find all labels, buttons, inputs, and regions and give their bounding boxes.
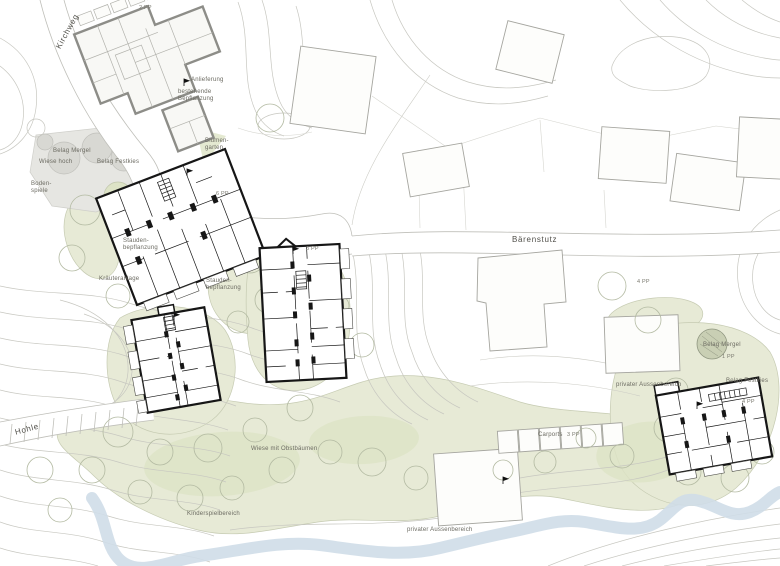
- site-plan: Kirchweg Bärenstutz Hohle Anlieferung be…: [0, 0, 780, 566]
- site-plan-drawing: [0, 0, 780, 566]
- new-building-2: [259, 236, 355, 382]
- hatched-tree: [697, 329, 727, 359]
